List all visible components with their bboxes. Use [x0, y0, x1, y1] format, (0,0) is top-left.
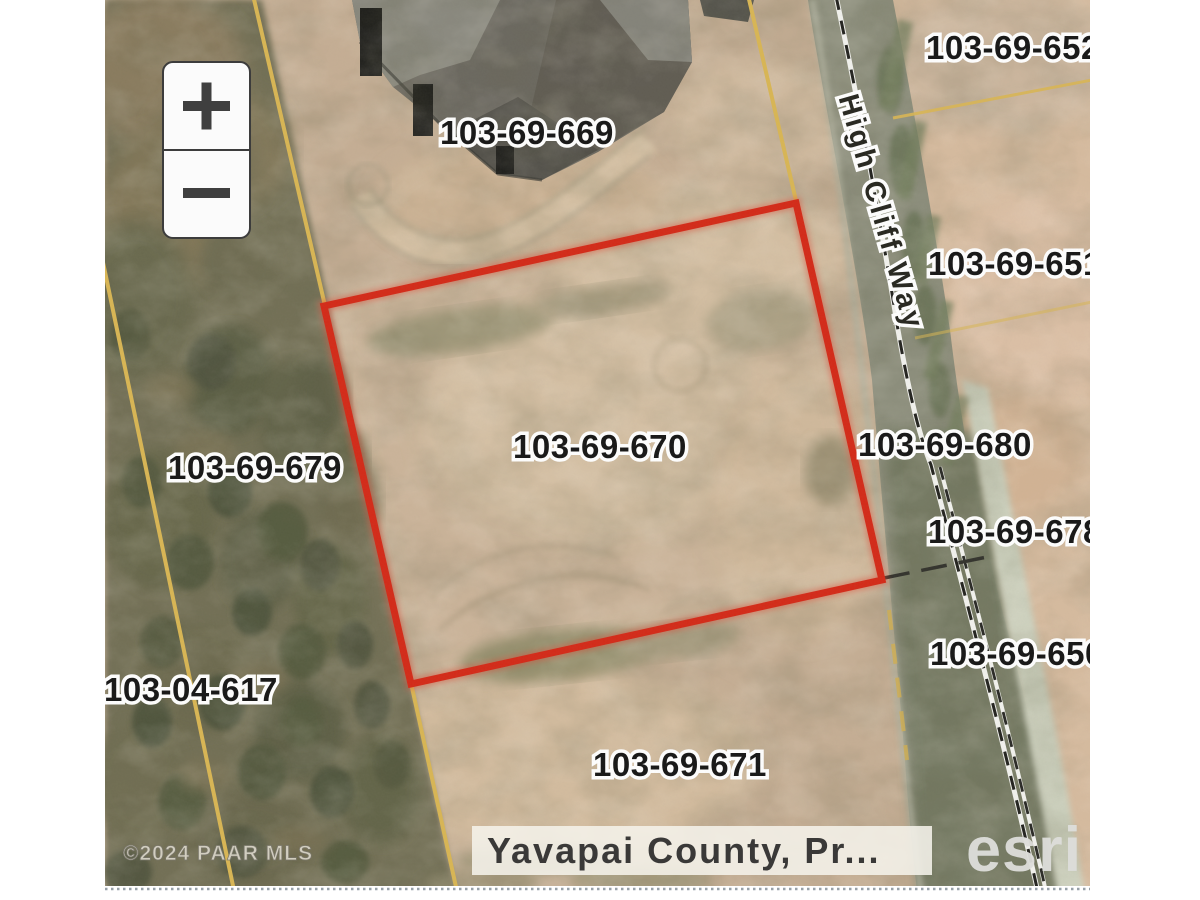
svg-text:©2024 PAAR MLS: ©2024 PAAR MLS — [123, 842, 313, 865]
svg-text:Yavapai County, Pr...: Yavapai County, Pr... — [487, 830, 880, 871]
svg-text:esri: esri — [966, 815, 1082, 885]
